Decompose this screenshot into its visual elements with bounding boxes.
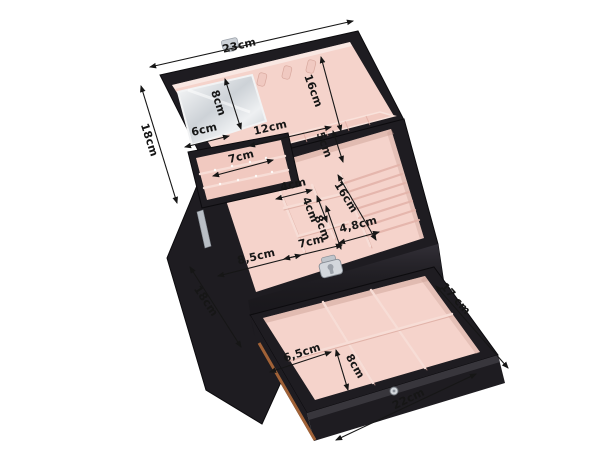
dim-label: 23cm (221, 35, 257, 55)
drawer-knob (390, 387, 398, 395)
product-diagram-stage: 23cm 18cm 8cm 6cm 16cm 12cm 5cm 7cm (0, 0, 600, 450)
dim-lid-side: 18cm (138, 86, 177, 203)
jewelry-box-illustration: 23cm 18cm 8cm 6cm 16cm 12cm 5cm 7cm (0, 0, 600, 450)
